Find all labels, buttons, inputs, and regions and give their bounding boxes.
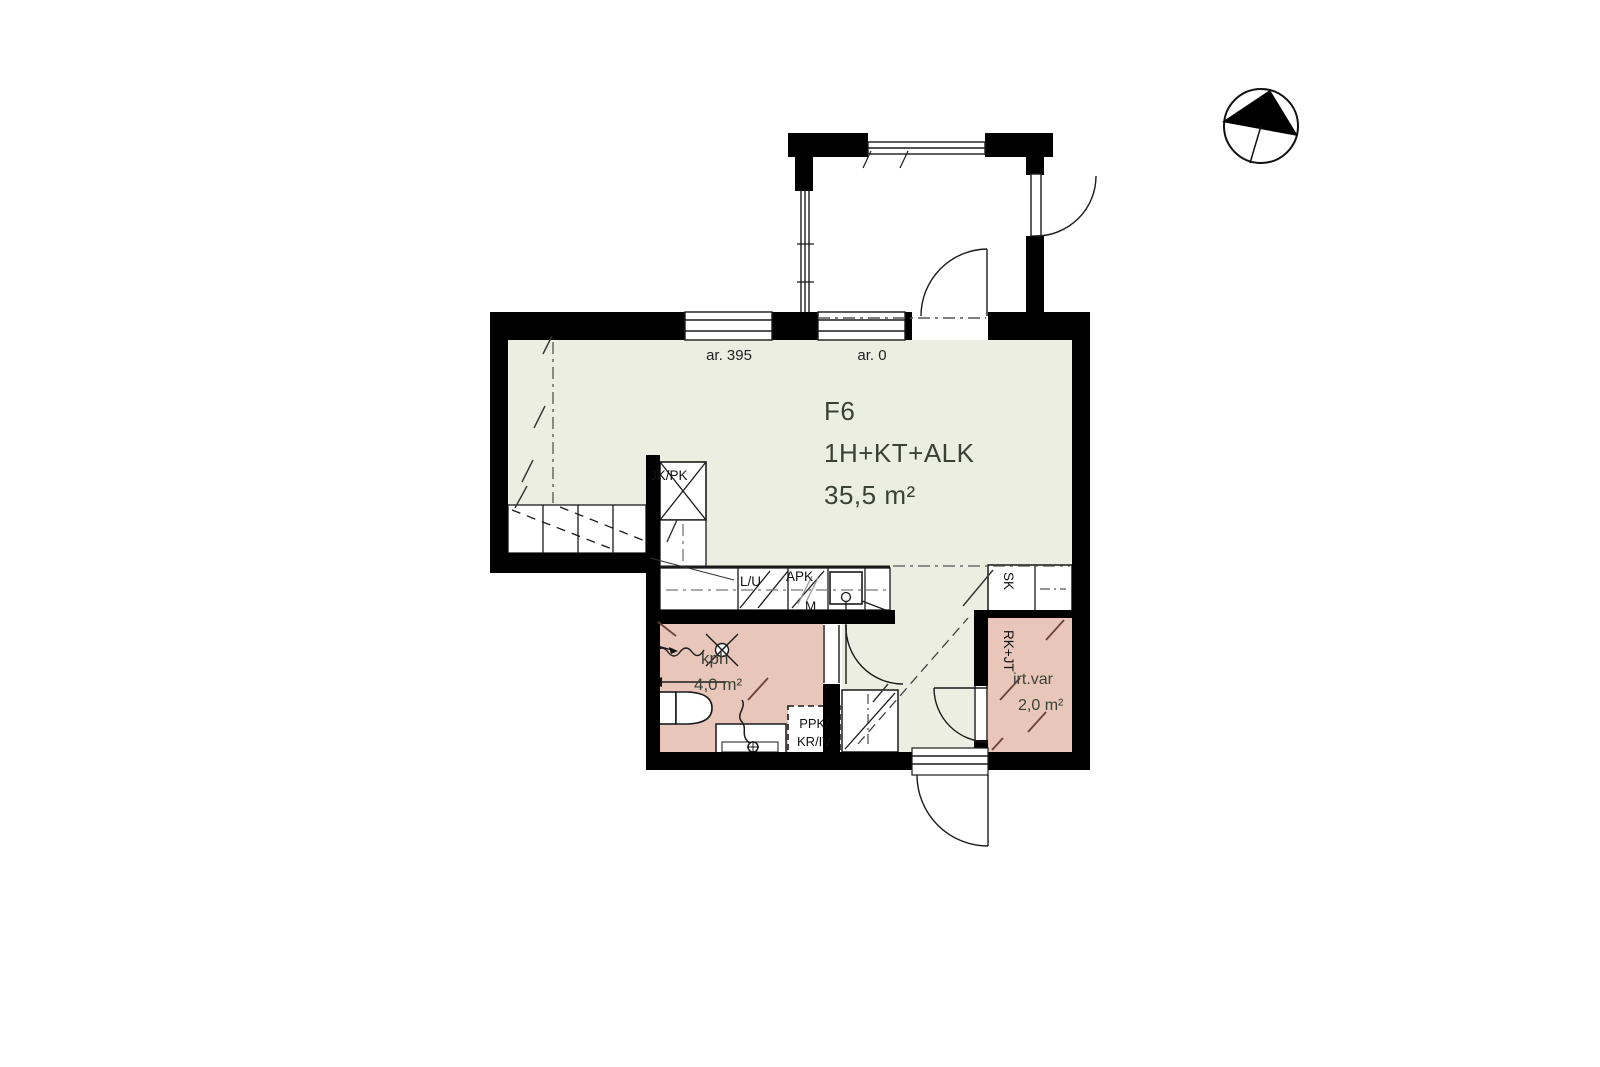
entry-door — [912, 748, 988, 846]
window-balcony — [818, 312, 905, 340]
floor-plan-drawing: ar. 395 ar. 0 F6 1H+KT+ALK 35,5 m² kph 4… — [0, 0, 1600, 1067]
unit-layout-label: 1H+KT+ALK — [824, 438, 975, 468]
bathroom-name-label: kph — [701, 649, 728, 668]
wall-right — [1072, 312, 1090, 770]
elevation-balcony-door-label: ar. 0 — [857, 347, 886, 364]
wall-bathroom-top — [646, 610, 895, 624]
sink-drain — [842, 593, 851, 602]
storage-area-label: 2,0 m² — [1018, 697, 1064, 714]
microwave-label: M — [805, 599, 816, 614]
floorplan-canvas: ar. 395 ar. 0 F6 1H+KT+ALK 35,5 m² kph 4… — [0, 0, 1600, 1067]
fridge-freezer-label: JK/PK — [650, 468, 688, 483]
cleaning-closet-box — [988, 565, 1072, 612]
wall-storage-top — [988, 610, 1072, 618]
unit-area-label: 35,5 m² — [824, 480, 916, 510]
wall-bottom-1 — [646, 752, 912, 770]
washer-reservation-label-2: KR/IV — [797, 734, 831, 749]
storage-name-label: irt.var — [1013, 671, 1054, 688]
utility-riser-label: RK+JT — [1001, 630, 1016, 672]
wall-top-pier — [772, 312, 818, 340]
cleaning-closet-label: SK — [1001, 572, 1016, 590]
wall-bottom-left — [490, 553, 660, 573]
wall-left — [490, 312, 508, 573]
wall-top-left — [490, 312, 685, 340]
toilet — [658, 692, 712, 724]
washer-reservation-label-1: PPK/ — [799, 716, 829, 731]
wall-storage-left — [974, 610, 988, 686]
balcony-wall-tl — [788, 133, 868, 157]
wall-mullion — [905, 312, 912, 340]
dishwasher-label: APK — [786, 569, 813, 584]
wardrobe-row — [508, 505, 646, 553]
elevation-window-label: ar. 395 — [706, 347, 752, 364]
balcony-wall-left-stub — [795, 157, 813, 191]
stove-oven-label: L/U — [740, 574, 761, 589]
balcony-wall-right — [1026, 236, 1044, 312]
balcony-wall-tr — [985, 133, 1053, 157]
kitchen-passage-floor — [890, 568, 988, 612]
balcony-wall-right-stub — [1026, 157, 1044, 175]
balcony-exterior-door — [1031, 174, 1096, 236]
north-arrow-icon — [1222, 89, 1298, 163]
balcony-glazing-left — [797, 190, 814, 312]
balcony-floor — [813, 157, 1026, 312]
unit-id-label: F6 — [824, 396, 855, 426]
window-living — [685, 312, 772, 340]
bathroom-area-label: 4,0 m² — [694, 675, 743, 694]
wall-bottom-2 — [988, 752, 1090, 770]
hallway-closet-box — [842, 690, 898, 752]
